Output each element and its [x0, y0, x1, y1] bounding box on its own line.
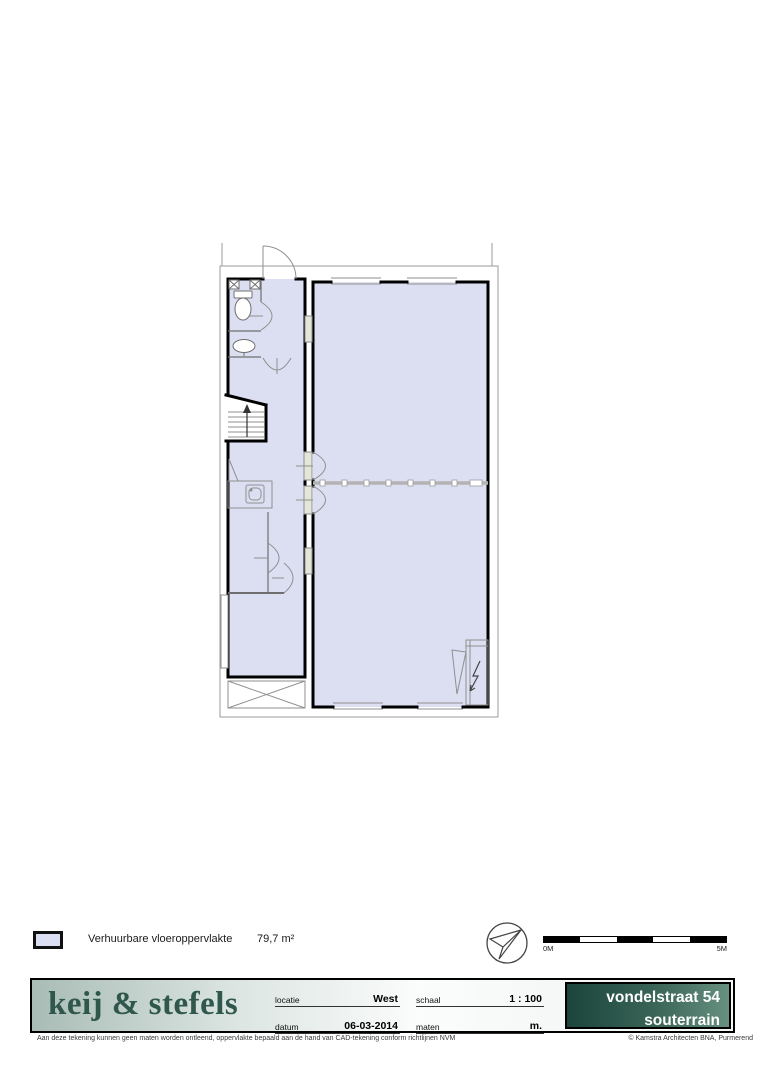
disclaimer-text: Aan deze tekening kunnen geen maten word…: [37, 1035, 455, 1042]
field-maten: maten m.: [416, 1013, 544, 1034]
field-locatie-label: locatie: [275, 995, 300, 1005]
field-locatie: locatie West: [275, 986, 400, 1007]
project-floor: souterrain: [567, 1009, 720, 1032]
scale-bar-segments: [543, 936, 727, 943]
field-datum-value: 06-03-2014: [344, 1020, 398, 1032]
project-address: vondelstraat 54: [567, 986, 720, 1009]
legend-label: Verhuurbare vloeroppervlakte: [88, 933, 232, 945]
title-block-fields: locatie West schaal 1 : 100 datum 06-03-…: [275, 986, 544, 1034]
legend-value: 79,7 m²: [257, 933, 294, 945]
field-schaal-label: schaal: [416, 995, 441, 1005]
project-banner: vondelstraat 54 souterrain: [565, 982, 731, 1029]
field-datum: datum 06-03-2014: [275, 1013, 400, 1034]
field-maten-label: maten: [416, 1022, 440, 1032]
legend-swatch: [33, 931, 63, 949]
field-maten-value: m.: [530, 1020, 542, 1032]
field-schaal: schaal 1 : 100: [416, 986, 544, 1007]
title-block: keij & stefels locatie West schaal 1 : 1…: [30, 978, 735, 1033]
field-schaal-value: 1 : 100: [509, 993, 542, 1005]
scale-end-label: 5M: [717, 944, 727, 953]
copyright-text: © Kamstra Architecten BNA, Purmerend: [628, 1035, 753, 1042]
rentable-area-fill: [226, 279, 488, 707]
void-cross: [228, 681, 305, 708]
scale-start-label: 0M: [543, 944, 553, 953]
north-arrow-icon: [485, 921, 531, 967]
floor-plan: [205, 238, 505, 723]
field-locatie-value: West: [373, 993, 398, 1005]
floor-plan-sheet: Verhuurbare vloeroppervlakte 79,7 m² 0M …: [0, 0, 764, 1080]
scale-bar: 0M 5M: [543, 936, 727, 953]
field-datum-label: datum: [275, 1022, 299, 1032]
company-logo: keij & stefels: [48, 986, 238, 1023]
